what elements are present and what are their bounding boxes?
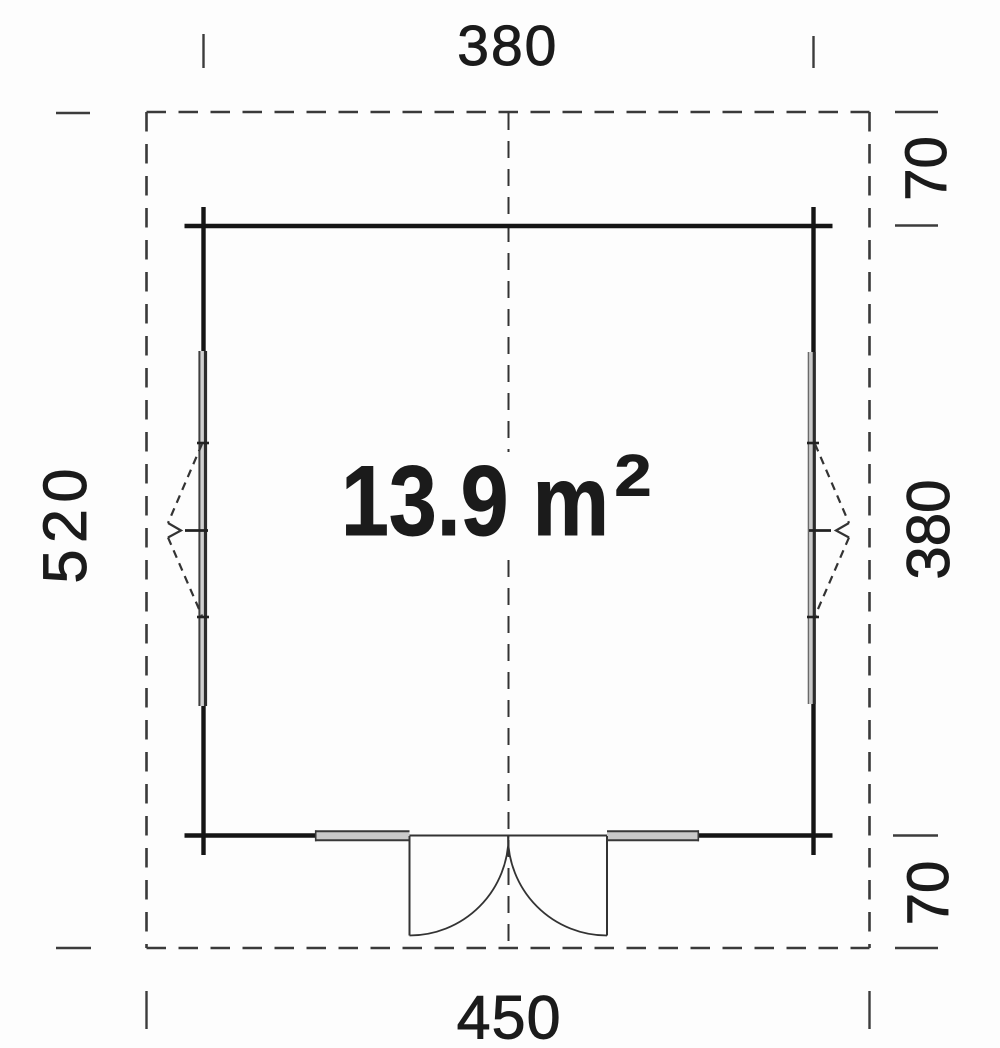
- svg-text:450: 450: [457, 984, 561, 1048]
- svg-text:70: 70: [896, 861, 961, 926]
- svg-text:520: 520: [31, 469, 99, 584]
- svg-text:380: 380: [895, 479, 962, 579]
- svg-text:380: 380: [457, 14, 556, 78]
- svg-text:13.9 m: 13.9 m: [341, 445, 609, 556]
- svg-text:2: 2: [615, 444, 652, 509]
- svg-text:70: 70: [894, 136, 959, 201]
